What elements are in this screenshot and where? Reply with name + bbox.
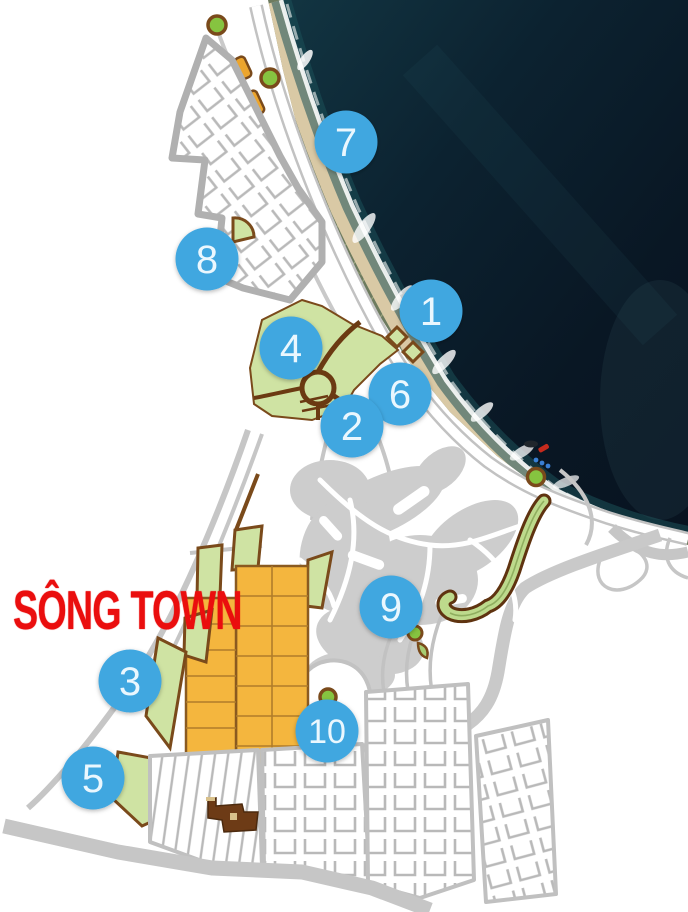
svg-text:10: 10 xyxy=(308,713,346,751)
district-a xyxy=(150,750,262,866)
map-marker-3[interactable]: 3 xyxy=(99,650,162,713)
svg-text:2: 2 xyxy=(341,405,363,449)
svg-text:8: 8 xyxy=(196,238,218,282)
map-canvas: 7 8 1 4 6 2 9 3 xyxy=(0,0,688,912)
map-marker-9[interactable]: 9 xyxy=(360,576,423,639)
svg-text:6: 6 xyxy=(389,373,411,417)
district-c xyxy=(366,684,474,898)
roundabout-icon xyxy=(528,469,545,486)
map-marker-7[interactable]: 7 xyxy=(315,111,378,174)
map-marker-5[interactable]: 5 xyxy=(62,747,125,810)
map-marker-1[interactable]: 1 xyxy=(400,280,463,343)
roundabout-icon xyxy=(208,16,226,34)
svg-text:4: 4 xyxy=(280,327,302,371)
svg-text:7: 7 xyxy=(335,121,357,165)
map-marker-2[interactable]: 2 xyxy=(321,395,384,458)
svg-text:3: 3 xyxy=(119,660,141,704)
svg-text:1: 1 xyxy=(420,290,442,334)
map-marker-4[interactable]: 4 xyxy=(260,317,323,380)
roundabout-icon xyxy=(261,69,279,87)
town-label: SÔNG TOWN xyxy=(13,583,242,637)
masterplan-map: 7 8 1 4 6 2 9 3 xyxy=(0,0,688,912)
svg-text:5: 5 xyxy=(82,757,104,801)
map-marker-8[interactable]: 8 xyxy=(176,228,239,291)
district-d xyxy=(476,720,556,902)
green-parcel xyxy=(232,526,262,570)
district-b xyxy=(262,744,370,884)
svg-text:9: 9 xyxy=(380,586,402,630)
map-marker-10[interactable]: 10 xyxy=(296,700,359,763)
